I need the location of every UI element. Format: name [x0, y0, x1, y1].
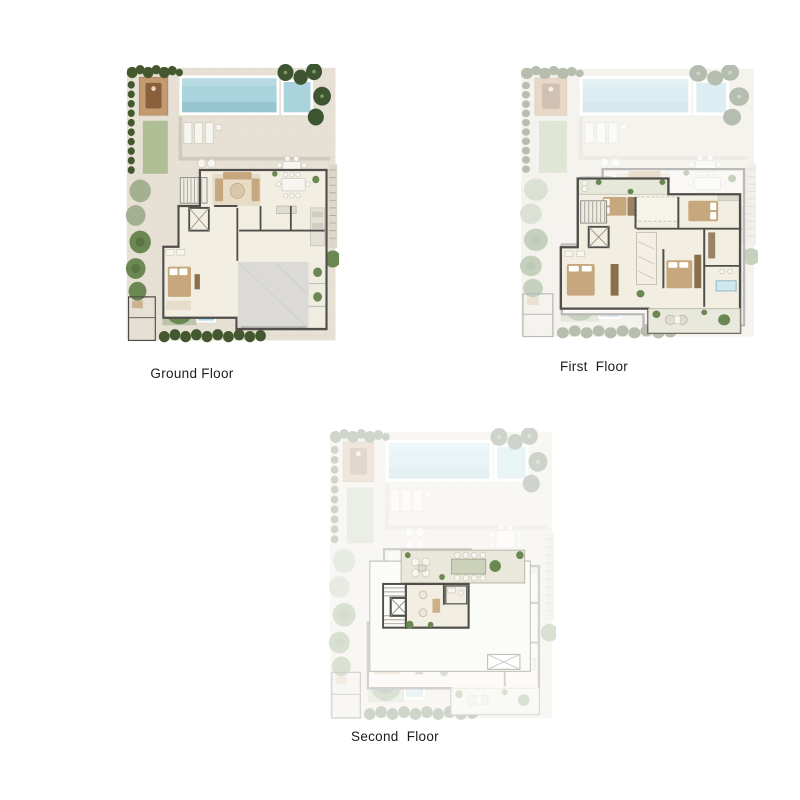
second-floor-label: Second Floor — [351, 729, 439, 744]
first-floor-label: First Floor — [560, 359, 628, 374]
ground-floor-interior — [163, 170, 326, 329]
second-floor-interior — [370, 550, 531, 671]
ground-floor-plan — [125, 64, 339, 348]
ground-floor-label: Ground Floor — [150, 366, 233, 381]
second-floor-plan — [328, 428, 556, 726]
first-floor-interior — [561, 178, 740, 332]
first-floor-plan — [519, 65, 758, 344]
